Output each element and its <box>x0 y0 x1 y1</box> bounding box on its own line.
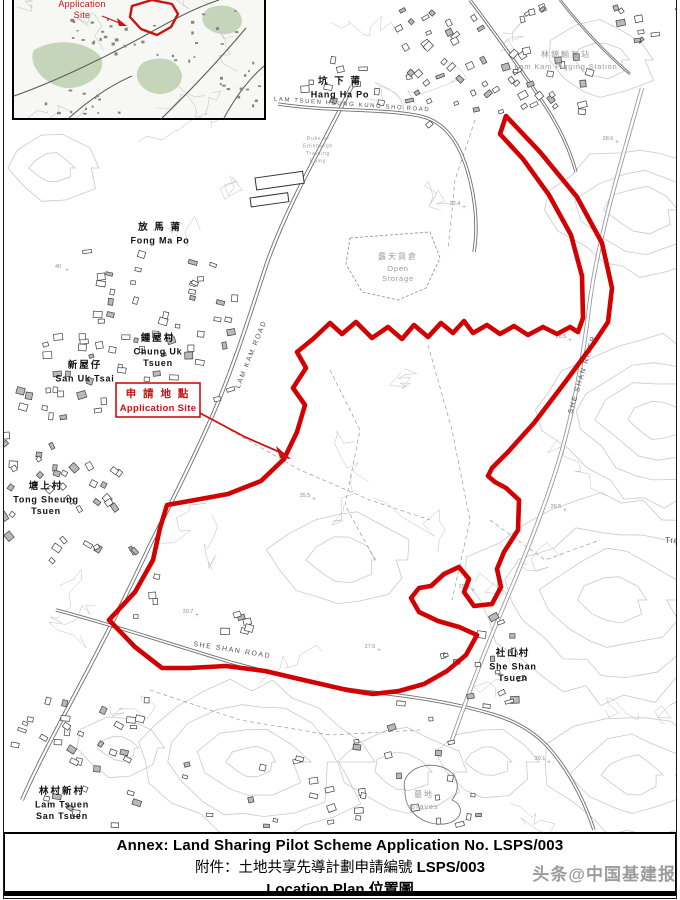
svg-text:+: + <box>615 140 619 146</box>
svg-text:塘上村: 塘上村 <box>29 480 64 492</box>
svg-text:林村新村: 林村新村 <box>39 785 85 797</box>
svg-text:Lam Kam Pigging Station: Lam Kam Pigging Station <box>514 62 617 71</box>
svg-text:Storage: Storage <box>382 274 414 283</box>
svg-text:Chung Uk: Chung Uk <box>134 347 183 357</box>
svg-text:28.6: 28.6 <box>603 136 614 142</box>
callout-en: Application Site <box>120 403 197 414</box>
svg-text:+: + <box>568 338 572 344</box>
svg-text:林錦輸氣站: 林錦輸氣站 <box>541 49 591 59</box>
svg-text:Hang Ha Po: Hang Ha Po <box>311 90 370 100</box>
svg-text:+: + <box>462 205 466 211</box>
svg-text:Duke of: Duke of <box>307 136 330 142</box>
svg-text:Camp: Camp <box>310 159 327 165</box>
map-label-tre-cutoff: Tre <box>665 536 676 545</box>
title-line-2-code: LSPS/003 <box>417 859 485 876</box>
svg-text:Edinburgh: Edinburgh <box>303 144 333 150</box>
title-line-3-zh: 位置圖 <box>365 881 414 898</box>
svg-text:放 馬 莆: 放 馬 莆 <box>137 221 182 233</box>
svg-text:坑 下 莆: 坑 下 莆 <box>318 75 362 87</box>
title-line-3-en: Location Plan <box>266 881 364 898</box>
inset-map-canvas: ApplicationSite <box>14 0 264 118</box>
svg-text:Training: Training <box>306 151 330 157</box>
svg-text:Tsuen: Tsuen <box>498 673 528 683</box>
svg-text:+: + <box>547 760 551 766</box>
map-label-lam-tsuen-san-tsuen: 林村新村Lam TsuenSan Tsuen <box>35 785 89 821</box>
svg-text:+: + <box>377 648 381 654</box>
svg-text:San Tsuen: San Tsuen <box>36 811 88 821</box>
watermark-text: 头条@中国基建报 <box>532 860 676 885</box>
svg-text:社山村: 社山村 <box>495 647 531 659</box>
svg-text:Tre: Tre <box>665 536 676 545</box>
svg-text:+: + <box>471 588 475 594</box>
svg-text:San Uk Tsai: San Uk Tsai <box>55 374 114 384</box>
svg-text:+: + <box>563 508 567 514</box>
svg-text:30.7: 30.7 <box>183 609 194 615</box>
svg-text:30.1: 30.1 <box>535 756 546 762</box>
svg-text:Graves: Graves <box>410 802 439 811</box>
title-line-1: Annex: Land Sharing Pilot Scheme Applica… <box>5 837 675 854</box>
svg-text:+: + <box>65 268 69 274</box>
svg-text:Tsuen: Tsuen <box>143 358 173 368</box>
title-line-2-zh: 附件：土地共享先導計劃申請編號 <box>195 860 417 876</box>
svg-text:Tong Sheung: Tong Sheung <box>13 495 79 505</box>
svg-text:墓地: 墓地 <box>414 789 434 799</box>
svg-text:Site: Site <box>74 10 91 20</box>
svg-text:露天貨倉: 露天貨倉 <box>378 251 418 261</box>
callout-zh: 申 請 地 點 <box>126 387 191 400</box>
svg-text:Application: Application <box>58 0 105 9</box>
svg-text:新屋仔: 新屋仔 <box>68 359 103 371</box>
svg-text:22.4: 22.4 <box>450 201 461 207</box>
svg-text:鍾屋村: 鍾屋村 <box>141 332 176 344</box>
svg-text:Tsuen: Tsuen <box>31 506 61 516</box>
svg-text:26.5: 26.5 <box>551 504 562 510</box>
svg-text:She Shan: She Shan <box>489 662 536 672</box>
svg-text:Open: Open <box>387 264 409 273</box>
svg-text:Fong Ma Po: Fong Ma Po <box>131 236 190 246</box>
svg-text:+: + <box>195 613 199 619</box>
svg-text:Lam Tsuen: Lam Tsuen <box>35 800 89 810</box>
svg-text:35.5: 35.5 <box>300 493 311 499</box>
map-canvas: 坑 下 莆Hang Ha Po林錦輸氣站Lam Kam Pigging Stat… <box>4 0 676 833</box>
svg-text:27.6: 27.6 <box>365 644 376 650</box>
svg-text:40: 40 <box>55 264 61 270</box>
location-plan-page: 坑 下 莆Hang Ha Po林錦輸氣站Lam Kam Pigging Stat… <box>0 0 680 900</box>
inset-overview-map: ApplicationSite <box>12 0 266 120</box>
svg-text:+: + <box>312 497 316 503</box>
